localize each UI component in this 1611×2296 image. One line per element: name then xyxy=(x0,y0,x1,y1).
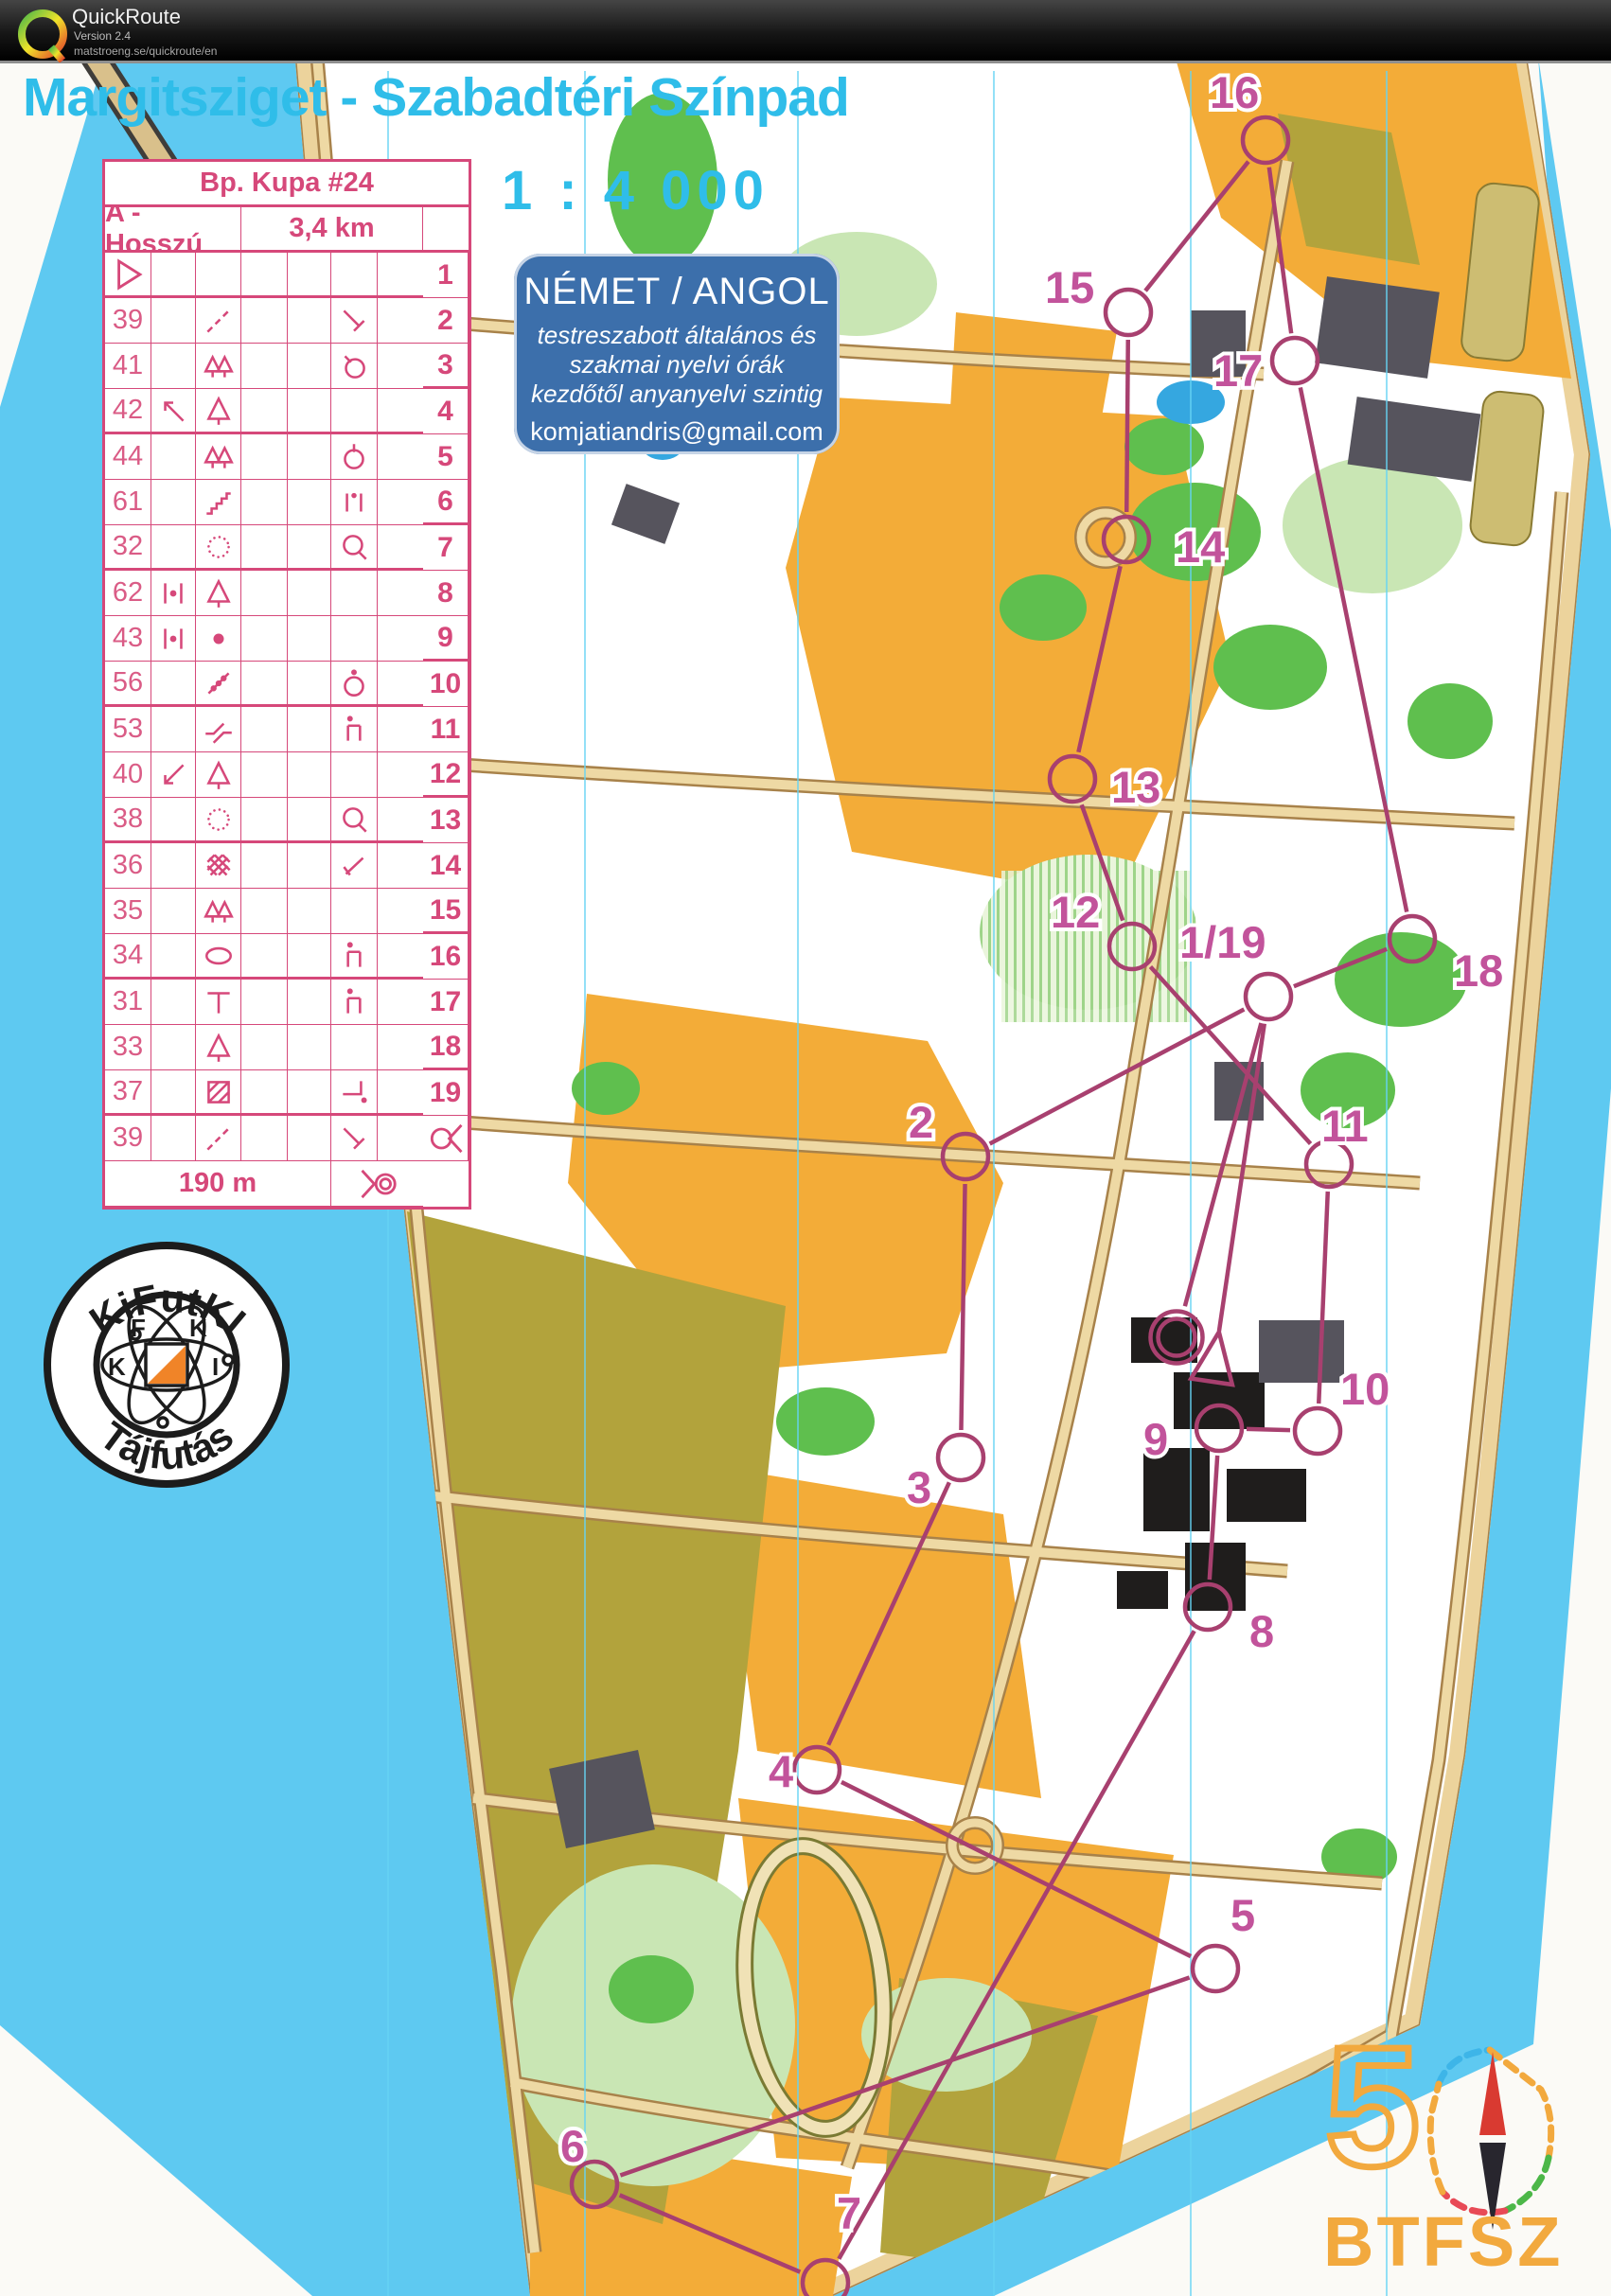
card-col-c xyxy=(151,1070,196,1116)
card-col-g xyxy=(331,843,378,889)
card-col-g xyxy=(331,798,378,843)
card-col-c xyxy=(151,752,196,798)
control-number-label: 1/19 xyxy=(1179,917,1266,967)
control-number-label: 17 xyxy=(1213,345,1263,396)
card-col-d xyxy=(196,662,241,707)
card-control-number: 16 xyxy=(423,934,469,980)
card-control-number: 7 xyxy=(423,525,469,571)
control-number-label: 11 xyxy=(1321,1101,1369,1151)
card-control-code: 37 xyxy=(105,1070,151,1116)
card-col-c xyxy=(151,1025,196,1070)
card-col-g xyxy=(331,480,378,525)
app-version: Version 2.4 xyxy=(74,29,131,43)
card-col-d xyxy=(196,1116,241,1161)
card-col-c xyxy=(151,889,196,934)
card-control-code: 31 xyxy=(105,980,151,1025)
card-col-g xyxy=(331,707,378,752)
card-control-number: 11 xyxy=(423,707,469,752)
card-col-g xyxy=(331,980,378,1025)
card-control-number: 14 xyxy=(423,843,469,889)
card-control-number: 2 xyxy=(423,298,469,344)
card-col-d xyxy=(196,980,241,1025)
card-control-number: 6 xyxy=(423,480,469,525)
card-control-code: 42 xyxy=(105,389,151,434)
control-number-label: 3 xyxy=(907,1462,931,1512)
card-control-number: 19 xyxy=(423,1070,469,1116)
card-col-g xyxy=(331,1025,378,1070)
control-number-label: 18 xyxy=(1454,945,1503,996)
card-col-g xyxy=(331,571,378,616)
card-control-code: 33 xyxy=(105,1025,151,1070)
control-number-label: 13 xyxy=(1111,762,1160,812)
control-number-label: 9 xyxy=(1143,1414,1168,1464)
course-leg xyxy=(1126,340,1128,512)
logo-letter-k2: K xyxy=(108,1352,126,1381)
advert-text: testreszabott általános és szakmai nyelv… xyxy=(514,321,840,409)
control-number-label: 4 xyxy=(769,1746,793,1796)
card-control-code: 38 xyxy=(105,798,151,843)
card-col-c xyxy=(151,798,196,843)
card-control-code: 56 xyxy=(105,662,151,707)
advert-email[interactable]: komjatiandris@gmail.com xyxy=(514,417,840,447)
card-control-code: 39 xyxy=(105,1116,151,1161)
card-control-number: 12 xyxy=(423,752,469,798)
card-control-number: 18 xyxy=(423,1025,469,1070)
card-col-c xyxy=(151,1116,196,1161)
control-number-label: 7 xyxy=(837,2188,861,2238)
control-number-label: 10 xyxy=(1340,1364,1390,1414)
advert-box: NÉMET / ANGOL testreszabott általános és… xyxy=(514,254,840,454)
card-control-number: 1 xyxy=(423,253,469,298)
card-col-d xyxy=(196,1070,241,1116)
card-col-c xyxy=(151,980,196,1025)
card-col-g xyxy=(331,662,378,707)
card-col-d xyxy=(196,707,241,752)
card-control-number: 4 xyxy=(423,389,469,434)
card-control-code: 41 xyxy=(105,344,151,389)
card-control-code: 61 xyxy=(105,480,151,525)
card-col-d xyxy=(196,525,241,571)
card-course-name: A - Hosszú xyxy=(105,207,241,253)
control-description-card: Bp. Kupa #24A - Hosszú3,4 km139241342444… xyxy=(102,159,471,1210)
card-col-c xyxy=(151,434,196,480)
card-control-code: 43 xyxy=(105,616,151,662)
card-col-g xyxy=(331,1070,378,1116)
card-control-number: 9 xyxy=(423,616,469,662)
control-number-label: 15 xyxy=(1045,262,1094,312)
card-finish-symbol-right xyxy=(331,1161,423,1207)
card-col-g xyxy=(331,298,378,344)
app-url[interactable]: matstroeng.se/quickroute/en xyxy=(74,44,217,58)
course-leg xyxy=(1247,1429,1290,1430)
card-col-c xyxy=(151,934,196,980)
card-col-d xyxy=(196,843,241,889)
card-control-number: 17 xyxy=(423,980,469,1025)
card-control-code: 62 xyxy=(105,571,151,616)
card-control-code: 35 xyxy=(105,889,151,934)
card-col-g xyxy=(331,889,378,934)
card-start-symbol xyxy=(105,253,151,298)
card-col-d xyxy=(196,798,241,843)
logo-five: 5 xyxy=(1325,2016,1420,2202)
quickroute-window: QuickRoute Version 2.4 matstroeng.se/qui… xyxy=(0,0,1611,2296)
card-col-c xyxy=(151,344,196,389)
card-col-g xyxy=(331,434,378,480)
control-number-label: 6 xyxy=(560,2121,585,2171)
card-col-g xyxy=(331,1116,378,1161)
card-col-c xyxy=(151,662,196,707)
app-title: QuickRoute xyxy=(72,5,181,29)
card-col-d xyxy=(196,889,241,934)
card-col-g xyxy=(331,525,378,571)
card-col-c xyxy=(151,616,196,662)
card-col-g xyxy=(331,344,378,389)
card-col-d xyxy=(196,298,241,344)
card-col-d xyxy=(196,344,241,389)
card-event-name: Bp. Kupa #24 xyxy=(105,162,469,207)
card-control-number: 3 xyxy=(423,344,469,389)
card-control-number: 13 xyxy=(423,798,469,843)
control-number-label: 16 xyxy=(1210,67,1259,117)
card-col-d xyxy=(196,616,241,662)
card-col-c xyxy=(151,389,196,434)
card-control-code: 39 xyxy=(105,298,151,344)
card-col-c xyxy=(151,843,196,889)
card-control-code: 32 xyxy=(105,525,151,571)
card-col-c xyxy=(151,480,196,525)
federation-logo: 5 BTFSZ xyxy=(1318,2016,1587,2286)
map-scale: 1 : 4 000 xyxy=(502,159,770,222)
logo-btfsz-text: BTFSZ xyxy=(1323,2202,1563,2281)
control-number-label: 5 xyxy=(1230,1890,1255,1940)
app-header: QuickRoute Version 2.4 matstroeng.se/qui… xyxy=(0,0,1611,63)
card-control-number: 8 xyxy=(423,571,469,616)
quickroute-logo-icon xyxy=(15,6,70,62)
card-col-c xyxy=(151,525,196,571)
card-col-c xyxy=(151,707,196,752)
card-control-number: 5 xyxy=(423,434,469,480)
card-control-code: 36 xyxy=(105,843,151,889)
card-col-d xyxy=(196,752,241,798)
card-control-number: 10 xyxy=(423,662,469,707)
card-col-d xyxy=(196,571,241,616)
card-control-code: 53 xyxy=(105,707,151,752)
control-number-label: 8 xyxy=(1249,1606,1274,1656)
card-col-d xyxy=(196,934,241,980)
card-control-number: 15 xyxy=(423,889,469,934)
card-course-length: 3,4 km xyxy=(241,207,423,253)
advert-title: NÉMET / ANGOL xyxy=(514,271,840,313)
card-col-g xyxy=(331,934,378,980)
card-control-code: 44 xyxy=(105,434,151,480)
card-col-g xyxy=(331,752,378,798)
card-finish-distance: 190 m xyxy=(105,1161,331,1207)
card-col-c xyxy=(151,298,196,344)
card-control-code: 34 xyxy=(105,934,151,980)
club-logo: F K K I KiFutKI Tájfutás xyxy=(38,1236,295,1493)
card-col-d xyxy=(196,434,241,480)
card-col-d xyxy=(196,389,241,434)
control-number-label: 2 xyxy=(909,1097,933,1147)
control-number-label: 12 xyxy=(1051,887,1100,937)
control-number-label: 14 xyxy=(1176,521,1225,572)
card-col-g xyxy=(331,616,378,662)
logo-letter-i: I xyxy=(212,1352,219,1381)
card-col-d xyxy=(196,480,241,525)
card-col-d xyxy=(196,1025,241,1070)
card-finish-symbol-left xyxy=(423,1116,469,1161)
card-control-code: 40 xyxy=(105,752,151,798)
card-col-g xyxy=(331,389,378,434)
card-col-c xyxy=(151,571,196,616)
map-title: Margitsziget - Szabadtéri Színpad xyxy=(23,66,849,129)
